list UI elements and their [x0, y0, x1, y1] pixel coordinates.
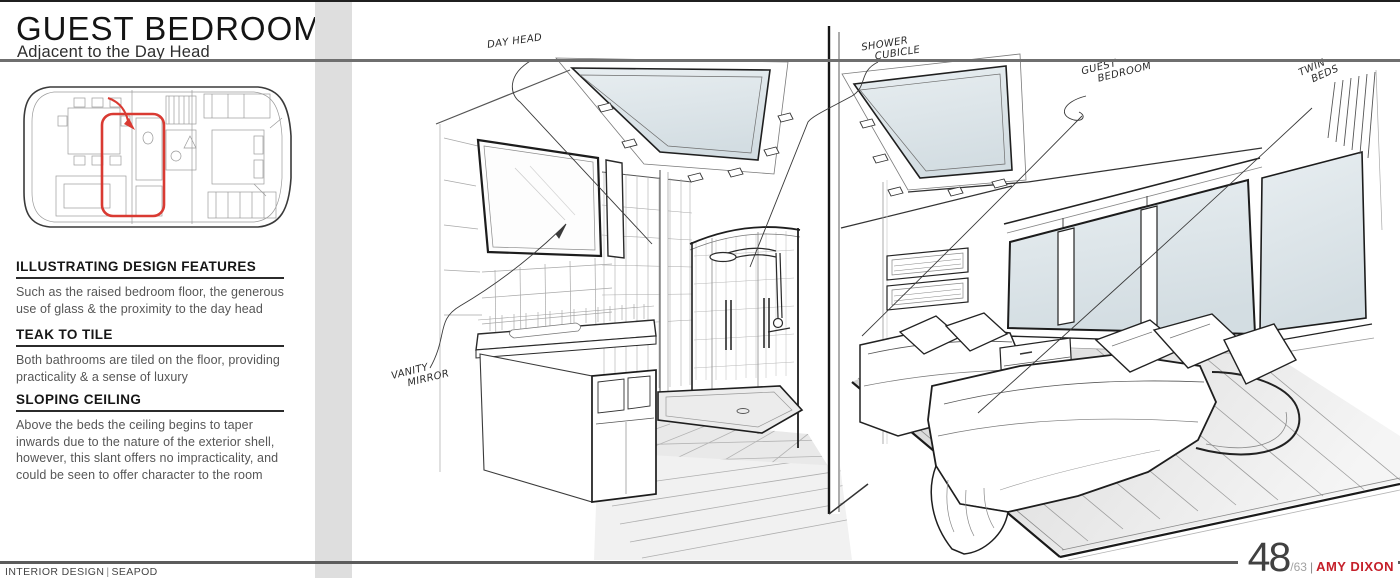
vanity-mirror-panel: [478, 140, 624, 258]
top-border: [0, 0, 1400, 2]
bedroom-window-band: [1004, 70, 1382, 356]
section-design-features: ILLUSTRATING DESIGN FEATURES Such as the…: [16, 259, 284, 317]
author-separator: |: [1310, 561, 1313, 573]
section-body: Such as the raised bedroom floor, the ge…: [16, 284, 284, 317]
divider-wall: [828, 26, 868, 514]
portfolio-page: GUEST BEDROOM Adjacent to the Day Head: [0, 0, 1400, 578]
day-head-door-jamb: [660, 170, 668, 412]
section-teak-to-tile: TEAK TO TILE Both bathrooms are tiled on…: [16, 327, 284, 385]
window-mullion: [1058, 228, 1074, 325]
shower-cubicle: [658, 227, 802, 448]
interior-sketch-svg: [360, 20, 1400, 560]
page-number: 48: [1248, 537, 1290, 578]
shower-door-handles: [726, 298, 769, 350]
section-heading: ILLUSTRATING DESIGN FEATURES: [16, 259, 284, 279]
page-number-block: 48 /63 | AMY DIXON: [1238, 537, 1398, 578]
vanity-cabinet: [476, 304, 656, 502]
page-total: /63: [1290, 561, 1307, 573]
section-heading: TEAK TO TILE: [16, 327, 284, 347]
leader-shower-cubicle: [750, 62, 878, 267]
shower-head: [710, 248, 790, 332]
footer-project: SEAPOD: [111, 566, 157, 578]
interior-sketch: DAY HEAD SHOWER CUBICLE GUEST BEDROOM TW…: [360, 20, 1400, 560]
floor-plan-svg: [14, 78, 302, 238]
footer-brand: INTERIOR DESIGN|SEAPOD: [5, 566, 158, 578]
leader-guest-swirl: [1064, 96, 1086, 120]
floor-plan-thumbnail: [14, 78, 302, 238]
section-sloping-ceiling: SLOPING CEILING Above the beds the ceili…: [16, 392, 284, 483]
header-rule: [0, 59, 1400, 62]
footer-rule: [0, 561, 1400, 564]
author-name: AMY DIXON: [1316, 560, 1394, 573]
vertical-divider-bar: [315, 0, 352, 578]
section-heading: SLOPING CEILING: [16, 392, 284, 412]
section-body: Both bathrooms are tiled on the floor, p…: [16, 352, 284, 385]
footer-label: INTERIOR DESIGN: [5, 566, 104, 578]
section-body: Above the beds the ceiling begins to tap…: [16, 417, 284, 483]
window-mullion: [1141, 206, 1157, 331]
